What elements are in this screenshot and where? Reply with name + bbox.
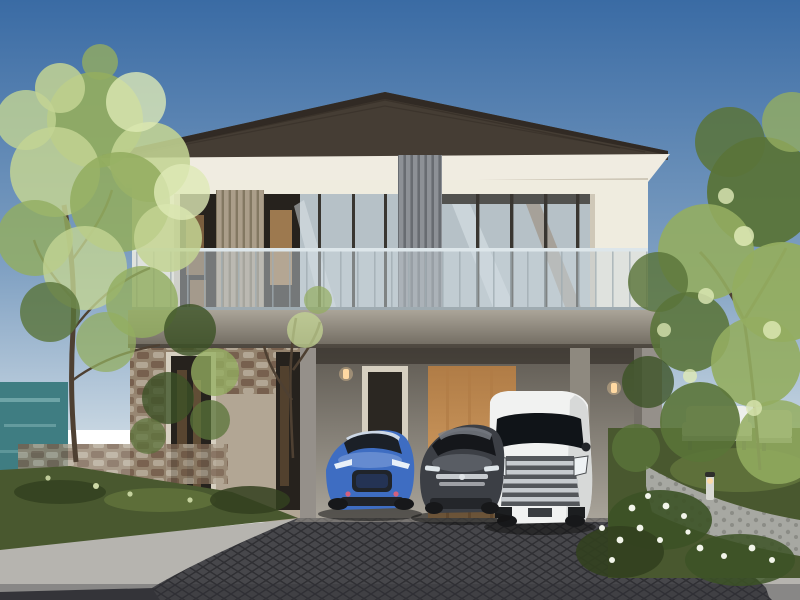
balcony [132,248,648,310]
bollard-light [705,472,715,500]
house-photo [0,0,800,600]
photo-canvas [0,0,800,600]
